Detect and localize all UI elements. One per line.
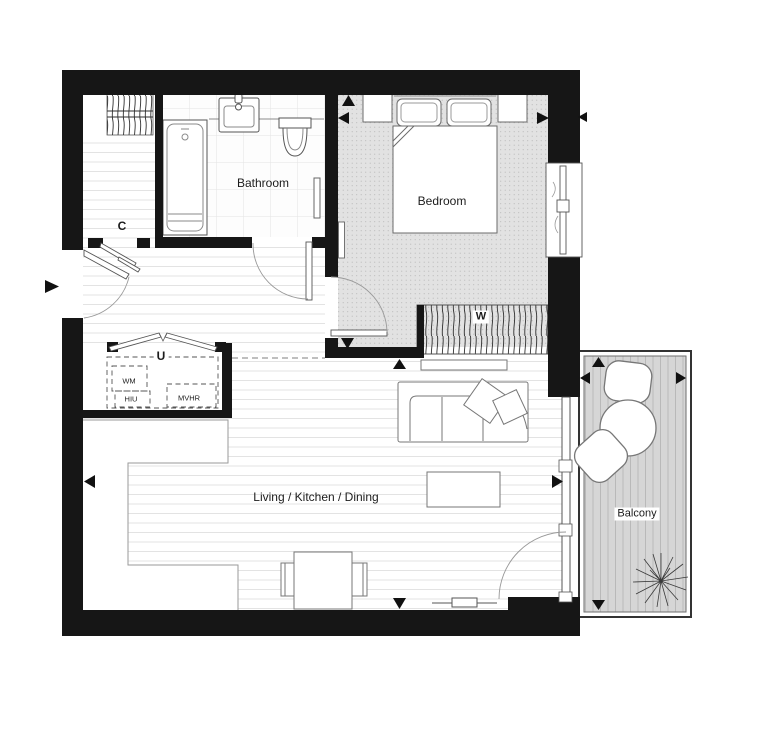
utility-wall-right: [222, 343, 232, 418]
closet-opening-stub-right: [137, 238, 150, 248]
heat-interface-unit-label: HIU: [124, 395, 139, 403]
wall-bathroom-bottom-left: [155, 237, 252, 248]
nightstand-left: [363, 94, 392, 122]
dining-chair-right: [351, 563, 367, 596]
wall-top: [62, 70, 580, 95]
tv-unit: [421, 360, 507, 370]
bedroom-wall-radiator: [339, 222, 345, 258]
room-label-bedroom: Bedroom: [418, 195, 467, 207]
wall-right-upper: [548, 95, 580, 163]
wall-closet-bathroom-divider: [155, 95, 163, 247]
wall-left-upper: [62, 95, 83, 250]
room-label-living-kitchen-dining: Living / Kitchen / Dining: [253, 491, 378, 503]
wall-right-middle: [548, 257, 580, 397]
wardrobe-post: [417, 305, 424, 354]
balcony-chair: [603, 359, 654, 404]
nightstand-right: [498, 94, 527, 122]
dining-table: [294, 552, 352, 609]
entrance-arrow: [45, 280, 59, 293]
bedroom-window: [546, 163, 582, 257]
washing-machine-label: WM: [121, 377, 136, 385]
room-label-closet: C: [118, 220, 127, 232]
wall-bottom-right-block: [508, 597, 580, 636]
closet-hanging-rail: [107, 93, 153, 135]
wall-bedroom-left: [325, 95, 338, 277]
coffee-table: [427, 472, 500, 507]
wardrobe-label: W: [473, 311, 489, 324]
room-label-balcony: Balcony: [614, 508, 659, 521]
room-label-utility-cupboard: U: [154, 349, 169, 363]
wall-bottom: [62, 610, 510, 636]
room-label-bathroom: Bathroom: [237, 177, 289, 189]
mvhr-label: MVHR: [177, 394, 201, 402]
floor-plan: Bathroom Bedroom Living / Kitchen / Dini…: [0, 0, 761, 735]
floor-plan-drawing: [0, 0, 761, 735]
wall-left-lower: [62, 318, 83, 610]
utility-wall-bottom: [82, 410, 232, 418]
utility-cupboard-interior: [83, 343, 222, 410]
wall-bedroom-bottom: [325, 347, 424, 358]
sofa: [398, 379, 528, 442]
